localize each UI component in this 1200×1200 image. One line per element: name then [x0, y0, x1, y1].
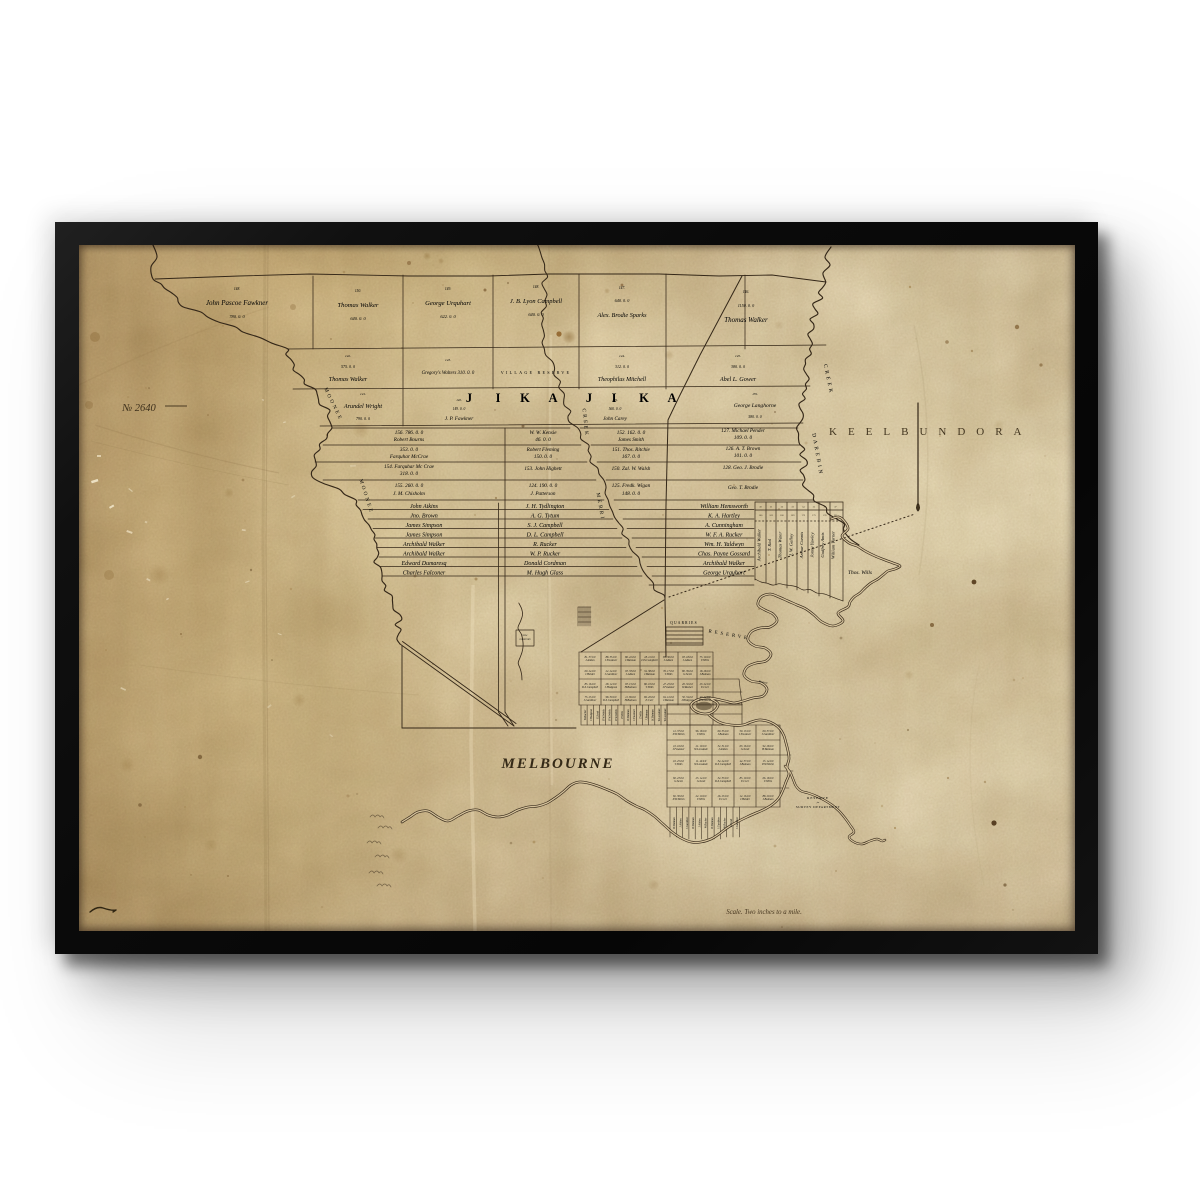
svg-text:63. 16.0.0: 63. 16.0.0 [740, 745, 751, 748]
svg-text:R. Rucker: R. Rucker [532, 542, 557, 548]
svg-text:Godfrey Amis: Godfrey Amis [820, 532, 825, 557]
svg-text:142.: 142. [345, 354, 351, 358]
svg-text:G.Scott: G.Scott [741, 747, 750, 751]
svg-text:H.Batman: H.Batman [711, 817, 714, 830]
svg-text:T.Wills: T.Wills [621, 711, 624, 719]
svg-text:156. 786. 0. 0: 156. 786. 0. 0 [395, 430, 424, 436]
svg-text:MOONEE: MOONEE [357, 478, 374, 515]
svg-text:G.Scott: G.Scott [683, 672, 692, 676]
svg-text:126. A. T. Brown: 126. A. T. Brown [726, 446, 761, 452]
svg-text:Alex. Brodie Sparks: Alex. Brodie Sparks [596, 312, 647, 319]
svg-text:34. 38.0.0: 34. 38.0.0 [644, 670, 655, 673]
svg-text:172: 172 [802, 514, 806, 517]
svg-text:85. 19.0.0: 85. 19.0.0 [740, 777, 751, 780]
svg-text:J.Batman: J.Batman [644, 672, 656, 676]
svg-text:96. 18.0.0: 96. 18.0.0 [696, 730, 707, 733]
svg-text:18. 11.0.0: 18. 11.0.0 [644, 656, 655, 659]
svg-text:25. 14.0.0: 25. 14.0.0 [696, 777, 707, 780]
svg-text:80. 39.0.0: 80. 39.0.0 [682, 670, 693, 673]
svg-text:580. 0. 0: 580. 0. 0 [748, 415, 761, 419]
svg-text:780. 0. 0: 780. 0. 0 [229, 314, 245, 319]
svg-text:143.: 143. [445, 358, 451, 362]
svg-text:J.Fawkner: J.Fawkner [633, 708, 636, 721]
svg-text:380. 0. 0: 380. 0. 0 [731, 364, 745, 369]
svg-text:T.Wills: T.Wills [675, 762, 684, 766]
svg-text:94. 12.0.0: 94. 12.0.0 [663, 696, 674, 699]
svg-text:J. Patterson: J. Patterson [530, 491, 555, 497]
svg-text:J.Gardiner: J.Gardiner [736, 816, 739, 829]
svg-text:P.W.Welsh: P.W.Welsh [698, 698, 711, 702]
svg-text:Archibald Walker: Archibald Walker [402, 542, 446, 548]
svg-text:J.Gardiner: J.Gardiner [584, 698, 598, 702]
svg-text:11. 40.0.0: 11. 40.0.0 [696, 760, 707, 763]
svg-text:James Simpson: James Simpson [406, 533, 443, 539]
svg-text:J.Batman: J.Batman [763, 797, 775, 801]
svg-text:George Langhorne: George Langhorne [734, 403, 777, 409]
svg-text:150. 0. 0: 150. 0. 0 [534, 454, 553, 460]
svg-text:Thos. Wills: Thos. Wills [848, 570, 872, 576]
svg-text:G.Scott: G.Scott [697, 779, 706, 783]
svg-text:Archibald Walker: Archibald Walker [402, 552, 446, 558]
svg-text:DAREBIN: DAREBIN [810, 433, 823, 477]
svg-text:Arundel Wright: Arundel Wright [343, 403, 383, 410]
svg-text:G.Scott: G.Scott [596, 711, 599, 720]
svg-text:46. 0. 0: 46. 0. 0 [535, 436, 551, 443]
svg-text:15. 14.0.0: 15. 14.0.0 [763, 760, 774, 763]
svg-text:36: 36 [824, 506, 827, 509]
svg-text:D.S.Campbell: D.S.Campbell [714, 762, 731, 766]
svg-text:T.Wills: T.Wills [764, 779, 773, 783]
svg-text:RESERVE: RESERVE [708, 629, 750, 641]
svg-text:H.Batman: H.Batman [692, 817, 695, 830]
svg-text:26. 23.0.0: 26. 23.0.0 [718, 795, 729, 798]
svg-text:16. 25.0.0: 16. 25.0.0 [673, 760, 684, 763]
svg-text:32. 31.0.0: 32. 31.0.0 [718, 745, 729, 748]
svg-text:790. 0. 0: 790. 0. 0 [356, 416, 370, 421]
svg-text:28. 12.0.0: 28. 12.0.0 [606, 683, 617, 686]
svg-text:640. 0. 0: 640. 0. 0 [350, 316, 366, 321]
svg-text:W.Lonsdale: W.Lonsdale [664, 708, 667, 722]
svg-text:152. 162. 0. 0: 152. 162. 0. 0 [617, 430, 646, 436]
svg-text:155. 260. 0. 0: 155. 260. 0. 0 [395, 483, 424, 489]
svg-text:J. P. Fawkner: J. P. Fawkner [445, 416, 474, 422]
svg-text:Chas. Payne Gossard: Chas. Payne Gossard [698, 552, 751, 558]
svg-text:James Simpson: James Simpson [406, 523, 443, 529]
svg-text:124. 190. 0. 0: 124. 190. 0. 0 [529, 482, 558, 489]
svg-text:CREEK: CREEK [822, 364, 834, 396]
svg-text:J. W. Galloy: J. W. Galloy [788, 533, 793, 557]
svg-text:W.Lonsdale: W.Lonsdale [694, 762, 708, 766]
svg-text:Edward Dumaresq: Edward Dumaresq [400, 561, 446, 567]
svg-text:Theophilus Mitchell: Theophilus Mitchell [598, 377, 646, 383]
svg-text:44. 37.0.0: 44. 37.0.0 [740, 760, 751, 763]
svg-text:75. 19.0.0: 75. 19.0.0 [700, 656, 711, 659]
svg-text:J.Aitken: J.Aitken [698, 818, 701, 828]
svg-text:CEMETERY: CEMETERY [519, 639, 531, 641]
svg-text:33: 33 [791, 506, 794, 509]
svg-text:E.Curr: E.Curr [718, 797, 728, 801]
svg-text:D. L. Campbell: D. L. Campbell [525, 533, 563, 539]
svg-text:A: A [667, 391, 676, 405]
svg-text:166: 166 [780, 514, 784, 517]
svg-text:Farquhar McCrae: Farquhar McCrae [389, 454, 429, 460]
svg-text:J.Aitken: J.Aitken [680, 818, 683, 828]
svg-text:Donald Cordman: Donald Cordman [523, 561, 566, 567]
svg-text:RESERVE: RESERVE [807, 796, 829, 800]
svg-text:P.W.Welsh: P.W.Welsh [761, 762, 774, 766]
svg-text:Arthur Connis: Arthur Connis [799, 532, 804, 560]
svg-text:G.Scott: G.Scott [674, 779, 683, 783]
svg-text:109. 0. 0: 109. 0. 0 [734, 435, 753, 441]
svg-text:21. 19.0.0: 21. 19.0.0 [696, 745, 707, 748]
svg-text:J.Aitken: J.Aitken [683, 658, 693, 662]
svg-text:W. P. Rucker: W. P. Rucker [530, 552, 561, 558]
svg-text:50. 34.0.0: 50. 34.0.0 [682, 696, 693, 699]
svg-text:T.Wills: T.Wills [665, 672, 674, 676]
svg-text:Scale. Two inches to a mile.: Scale. Two inches to a mile. [726, 909, 802, 916]
svg-text:J.Fawkner: J.Fawkner [672, 747, 685, 751]
svg-text:163: 163 [769, 514, 773, 517]
svg-text:T.Wills: T.Wills [646, 685, 655, 689]
svg-text:Robert Bourns: Robert Bourns [393, 437, 424, 443]
svg-text:A: A [548, 391, 557, 405]
svg-text:W. W. Kensie: W. W. Kensie [530, 430, 558, 436]
svg-text:149.: 149. [445, 287, 451, 291]
svg-text:SURVEY DEPARTMENT: SURVEY DEPARTMENT [796, 805, 840, 809]
svg-text:149.: 149. [612, 398, 618, 402]
svg-text:175: 175 [812, 514, 816, 517]
svg-text:S. J. Campbell: S. J. Campbell [528, 523, 563, 529]
svg-text:D.S.Campbell: D.S.Campbell [714, 779, 731, 783]
svg-text:W.Rucker: W.Rucker [724, 817, 727, 829]
svg-text:640. 0. 0: 640. 0. 0 [528, 312, 544, 317]
svg-text:H.Batman: H.Batman [627, 709, 630, 722]
svg-text:E.Curr: E.Curr [644, 698, 654, 702]
svg-text:№ 2640: № 2640 [121, 403, 156, 414]
svg-text:11. 36.0.0: 11. 36.0.0 [625, 696, 636, 699]
svg-text:Reserve: Reserve [757, 680, 768, 685]
svg-text:32: 32 [781, 506, 784, 509]
svg-text:Thomas Walker: Thomas Walker [724, 316, 768, 324]
svg-text:560. 0. 0: 560. 0. 0 [609, 407, 622, 411]
svg-text:MOONEE: MOONEE [322, 387, 343, 423]
svg-text:88. 20.0.0: 88. 20.0.0 [763, 795, 774, 798]
svg-text:76. 17.0.0: 76. 17.0.0 [663, 670, 674, 673]
svg-text:E.Curr: E.Curr [700, 685, 710, 689]
svg-text:1150. 0. 0: 1150. 0. 0 [738, 303, 755, 308]
svg-text:150.: 150. [355, 289, 361, 293]
svg-text:101. 0. 0: 101. 0. 0 [734, 453, 753, 459]
svg-text:154. Farquhar Mc Crae: 154. Farquhar Mc Crae [384, 463, 435, 470]
svg-text:M. Hugh Glass: M. Hugh Glass [526, 571, 564, 577]
svg-text:John Pascoe Fawkner: John Pascoe Fawkner [206, 299, 268, 307]
svg-text:A. G. Tytum: A. G. Tytum [530, 514, 560, 520]
svg-text:69. 24.0.0: 69. 24.0.0 [585, 670, 596, 673]
svg-text:93. 33.0.0: 93. 33.0.0 [625, 670, 636, 673]
svg-text:J.Fawkner: J.Fawkner [739, 732, 752, 736]
svg-text:P.W.Welsh: P.W.Welsh [609, 709, 612, 722]
svg-text:145.: 145. [735, 354, 741, 358]
svg-text:69. 35.0.0: 69. 35.0.0 [718, 730, 729, 733]
svg-text:160: 160 [759, 514, 763, 517]
svg-text:J.Fawkner: J.Fawkner [662, 685, 675, 689]
svg-text:22. 10.0.0: 22. 10.0.0 [696, 795, 707, 798]
svg-text:J.Aitken: J.Aitken [718, 747, 728, 751]
svg-text:12. 37.0.0: 12. 37.0.0 [673, 730, 684, 733]
svg-text:J.Helder: J.Helder [740, 797, 751, 801]
svg-text:60. 23.0.0: 60. 23.0.0 [673, 777, 684, 780]
svg-text:T.Wills: T.Wills [701, 658, 710, 662]
svg-text:J.Batman: J.Batman [646, 709, 649, 720]
svg-text:47. 22.0.0: 47. 22.0.0 [700, 696, 711, 699]
svg-text:81. 37.0.0: 81. 37.0.0 [585, 656, 596, 659]
svg-text:146.: 146. [743, 290, 749, 294]
svg-text:20. 32.0.0: 20. 32.0.0 [682, 683, 693, 686]
svg-text:Archibald Walker: Archibald Walker [702, 561, 746, 567]
svg-text:J.Gardiner: J.Gardiner [686, 816, 689, 829]
svg-text:31: 31 [770, 506, 773, 509]
svg-text:K: K [639, 391, 649, 405]
svg-text:Abel L. Gower: Abel L. Gower [719, 376, 757, 383]
svg-text:59. 13.0.0: 59. 13.0.0 [740, 730, 751, 733]
svg-text:James Smith: James Smith [618, 437, 644, 443]
svg-text:30: 30 [759, 506, 762, 509]
svg-text:John Carey: John Carey [603, 416, 628, 422]
svg-text:George Urquhart: George Urquhart [703, 571, 745, 577]
svg-text:K: K [520, 391, 530, 405]
svg-text:D.S.Campbell: D.S.Campbell [581, 685, 598, 689]
svg-text:127. Michael Pender: 127. Michael Pender [721, 428, 766, 434]
svg-text:J.Batman: J.Batman [700, 672, 712, 676]
svg-text:G.Scott: G.Scott [730, 819, 733, 828]
svg-text:151. Thos. Ritchie: 151. Thos. Ritchie [612, 447, 650, 453]
svg-text:K. A. Hartley: K. A. Hartley [707, 514, 740, 520]
svg-text:Wm. H. Yaldwyn: Wm. H. Yaldwyn [704, 542, 744, 548]
svg-text:J. H. Tydlington: J. H. Tydlington [526, 504, 565, 510]
svg-text:John Atkins: John Atkins [410, 504, 439, 510]
svg-text:Robert Fleming: Robert Fleming [526, 447, 560, 453]
svg-text:P.W.Welsh: P.W.Welsh [672, 797, 685, 801]
svg-text:178: 178 [823, 514, 827, 517]
svg-text:H.Batman: H.Batman [624, 698, 637, 702]
svg-text:I: I [496, 391, 501, 405]
svg-text:353. 0. 0: 353. 0. 0 [400, 447, 419, 453]
svg-text:128. Geo. J. Brodie: 128. Geo. J. Brodie [723, 465, 764, 471]
svg-text:35: 35 [813, 506, 816, 509]
svg-text:139.: 139. [752, 392, 758, 396]
svg-text:T.Wills: T.Wills [639, 711, 642, 719]
svg-text:P.W.Welsh: P.W.Welsh [672, 732, 685, 736]
svg-text:60. 37.0.0: 60. 37.0.0 [763, 730, 774, 733]
svg-text:J.Batman: J.Batman [663, 698, 675, 702]
svg-text:10. 16.0.0: 10. 16.0.0 [673, 745, 684, 748]
svg-text:Gregory's Walters 310. 0. 0: Gregory's Walters 310. 0. 0 [422, 371, 475, 376]
svg-text:148. 0. 0: 148. 0. 0 [622, 490, 641, 497]
svg-text:H.Batman: H.Batman [673, 817, 676, 830]
svg-text:69. 20.0.0: 69. 20.0.0 [644, 696, 655, 699]
svg-text:Archibald Walker: Archibald Walker [757, 529, 762, 562]
svg-text:I: I [612, 391, 617, 405]
svg-text:148.: 148. [234, 287, 240, 291]
svg-text:Thomas Walker: Thomas Walker [329, 376, 368, 383]
svg-text:34. 24.0.0: 34. 24.0.0 [718, 760, 729, 763]
svg-text:Thomas Walker: Thomas Walker [338, 302, 379, 309]
svg-text:149. 0. 0: 149. 0. 0 [453, 407, 466, 411]
svg-text:W. F. A. Rucker: W. F. A. Rucker [706, 533, 744, 539]
svg-text:T. Rial: T. Rial [767, 538, 772, 551]
svg-text:86. 10.0.0: 86. 10.0.0 [644, 683, 655, 686]
svg-text:23. 22.0.0: 23. 22.0.0 [700, 683, 711, 686]
svg-text:CREEK: CREEK [580, 408, 589, 437]
svg-text:J.Batman: J.Batman [625, 658, 637, 662]
svg-text:147.: 147. [619, 286, 625, 290]
svg-text:140.: 140. [456, 398, 462, 402]
svg-text:Geo. T. Brodie: Geo. T. Brodie [728, 485, 759, 491]
svg-text:98. 30.0.0: 98. 30.0.0 [606, 696, 617, 699]
svg-text:J.Batman: J.Batman [718, 732, 730, 736]
svg-text:W.Lonsdale: W.Lonsdale [658, 708, 661, 722]
svg-text:J.Aitken: J.Aitken [585, 658, 595, 662]
svg-text:J: J [466, 391, 472, 405]
svg-text:J.Fawkner: J.Fawkner [605, 658, 618, 662]
svg-text:H.Batman: H.Batman [761, 747, 774, 751]
svg-text:47. 25.0.0: 47. 25.0.0 [663, 683, 674, 686]
svg-text:312. 0. 0: 312. 0. 0 [615, 364, 629, 369]
svg-text:Thomas Water: Thomas Water [778, 532, 783, 559]
svg-text:D.S.Campbell: D.S.Campbell [602, 698, 619, 702]
svg-text:William Turner: William Turner [831, 531, 836, 559]
svg-text:J.Aitken: J.Aitken [626, 672, 636, 676]
svg-text:J: J [586, 391, 592, 405]
svg-text:P.W.Welsh: P.W.Welsh [603, 709, 606, 722]
svg-text:85. 16.0.0: 85. 16.0.0 [585, 683, 596, 686]
svg-text:KEELBUNDORA: KEELBUNDORA [829, 426, 1033, 438]
svg-text:Jno. Brown: Jno. Brown [410, 514, 437, 520]
svg-text:William Hemsworth: William Hemsworth [700, 504, 748, 510]
svg-text:NEW: NEW [523, 635, 529, 637]
svg-text:125. Fredk. Wigan: 125. Fredk. Wigan [612, 483, 651, 489]
svg-text:T.Wills: T.Wills [697, 732, 706, 736]
svg-text:T.Wills: T.Wills [697, 797, 706, 801]
svg-text:J. M. Chisholm: J. M. Chisholm [393, 491, 425, 497]
svg-text:E.Curr: E.Curr [740, 779, 750, 783]
svg-text:W.Rucker: W.Rucker [705, 817, 708, 829]
svg-text:12. 16.0.0: 12. 16.0.0 [740, 795, 751, 798]
svg-text:J.Helder: J.Helder [585, 672, 596, 676]
svg-text:J. B. Lyon Campbell: J. B. Lyon Campbell [510, 298, 562, 305]
svg-text:640. 0. 0: 640. 0. 0 [615, 298, 631, 303]
svg-text:VILLAGE RESERVE: VILLAGE RESERVE [501, 370, 571, 375]
svg-text:D.S.Campbell: D.S.Campbell [640, 658, 657, 662]
svg-text:141.: 141. [360, 392, 366, 396]
svg-text:J.Hodgson: J.Hodgson [681, 698, 694, 702]
svg-text:QUARRIES: QUARRIES [670, 621, 698, 625]
svg-text:J.Hodgson: J.Hodgson [590, 708, 593, 721]
svg-text:86. 22.0.0: 86. 22.0.0 [625, 656, 636, 659]
svg-text:for: for [817, 801, 820, 804]
svg-text:P.W.Welsh: P.W.Welsh [615, 709, 618, 722]
svg-text:Jonny Yawley: Jonny Yawley [810, 532, 815, 558]
svg-text:66. 18.0.0: 66. 18.0.0 [763, 777, 774, 780]
svg-text:34. 33.0.0: 34. 33.0.0 [718, 777, 729, 780]
svg-text:W.Rucker: W.Rucker [682, 685, 694, 689]
svg-text:92. 28.0.0: 92. 28.0.0 [763, 745, 774, 748]
svg-text:144.: 144. [619, 354, 625, 358]
svg-text:MELBOURNE: MELBOURNE [500, 756, 614, 772]
svg-text:George Urquhart: George Urquhart [425, 300, 471, 307]
svg-text:J.Gardiner: J.Gardiner [717, 816, 720, 829]
svg-text:H.Batman: H.Batman [624, 685, 637, 689]
svg-text:J.Batman: J.Batman [740, 762, 752, 766]
svg-text:W.Lonsdale: W.Lonsdale [694, 747, 708, 751]
svg-text:37: 37 [834, 506, 837, 509]
svg-text:J.Aitken: J.Aitken [664, 658, 674, 662]
svg-text:153. John Highett: 153. John Highett [524, 466, 562, 472]
svg-text:181: 181 [834, 514, 838, 517]
svg-text:82. 30.0.0: 82. 30.0.0 [673, 795, 684, 798]
svg-text:J.Gardiner: J.Gardiner [762, 732, 776, 736]
svg-text:88. 35.0.0: 88. 35.0.0 [606, 656, 617, 659]
svg-text:85. 36.0.0: 85. 36.0.0 [663, 656, 674, 659]
svg-text:H.Batman: H.Batman [652, 709, 655, 722]
svg-text:167. 0. 0: 167. 0. 0 [622, 454, 641, 460]
svg-text:W.Rucker: W.Rucker [584, 709, 587, 721]
svg-text:Charles Falconer: Charles Falconer [403, 571, 446, 577]
svg-text:622. 0. 0: 622. 0. 0 [440, 314, 456, 319]
svg-text:93. 15.0.0: 93. 15.0.0 [625, 683, 636, 686]
svg-text:J.Hodgson: J.Hodgson [605, 685, 618, 689]
svg-text:318. 0. 0: 318. 0. 0 [400, 471, 419, 477]
svg-text:75. 25.0.0: 75. 25.0.0 [585, 696, 596, 699]
svg-text:575. 0. 0: 575. 0. 0 [341, 364, 355, 369]
svg-text:A. Cunningham: A. Cunningham [704, 523, 743, 529]
svg-text:169: 169 [791, 514, 795, 517]
svg-text:22. 24.0.0: 22. 24.0.0 [606, 670, 617, 673]
svg-text:150. Zal. W. Walsh: 150. Zal. W. Walsh [612, 466, 651, 472]
svg-text:J.Gardiner: J.Gardiner [605, 672, 619, 676]
svg-text:18. 28.0.0: 18. 28.0.0 [700, 670, 711, 673]
svg-text:93. 18.0.0: 93. 18.0.0 [682, 656, 693, 659]
svg-text:MERRI: MERRI [595, 492, 606, 521]
svg-text:148.: 148. [533, 285, 539, 289]
svg-text:34: 34 [802, 506, 805, 509]
